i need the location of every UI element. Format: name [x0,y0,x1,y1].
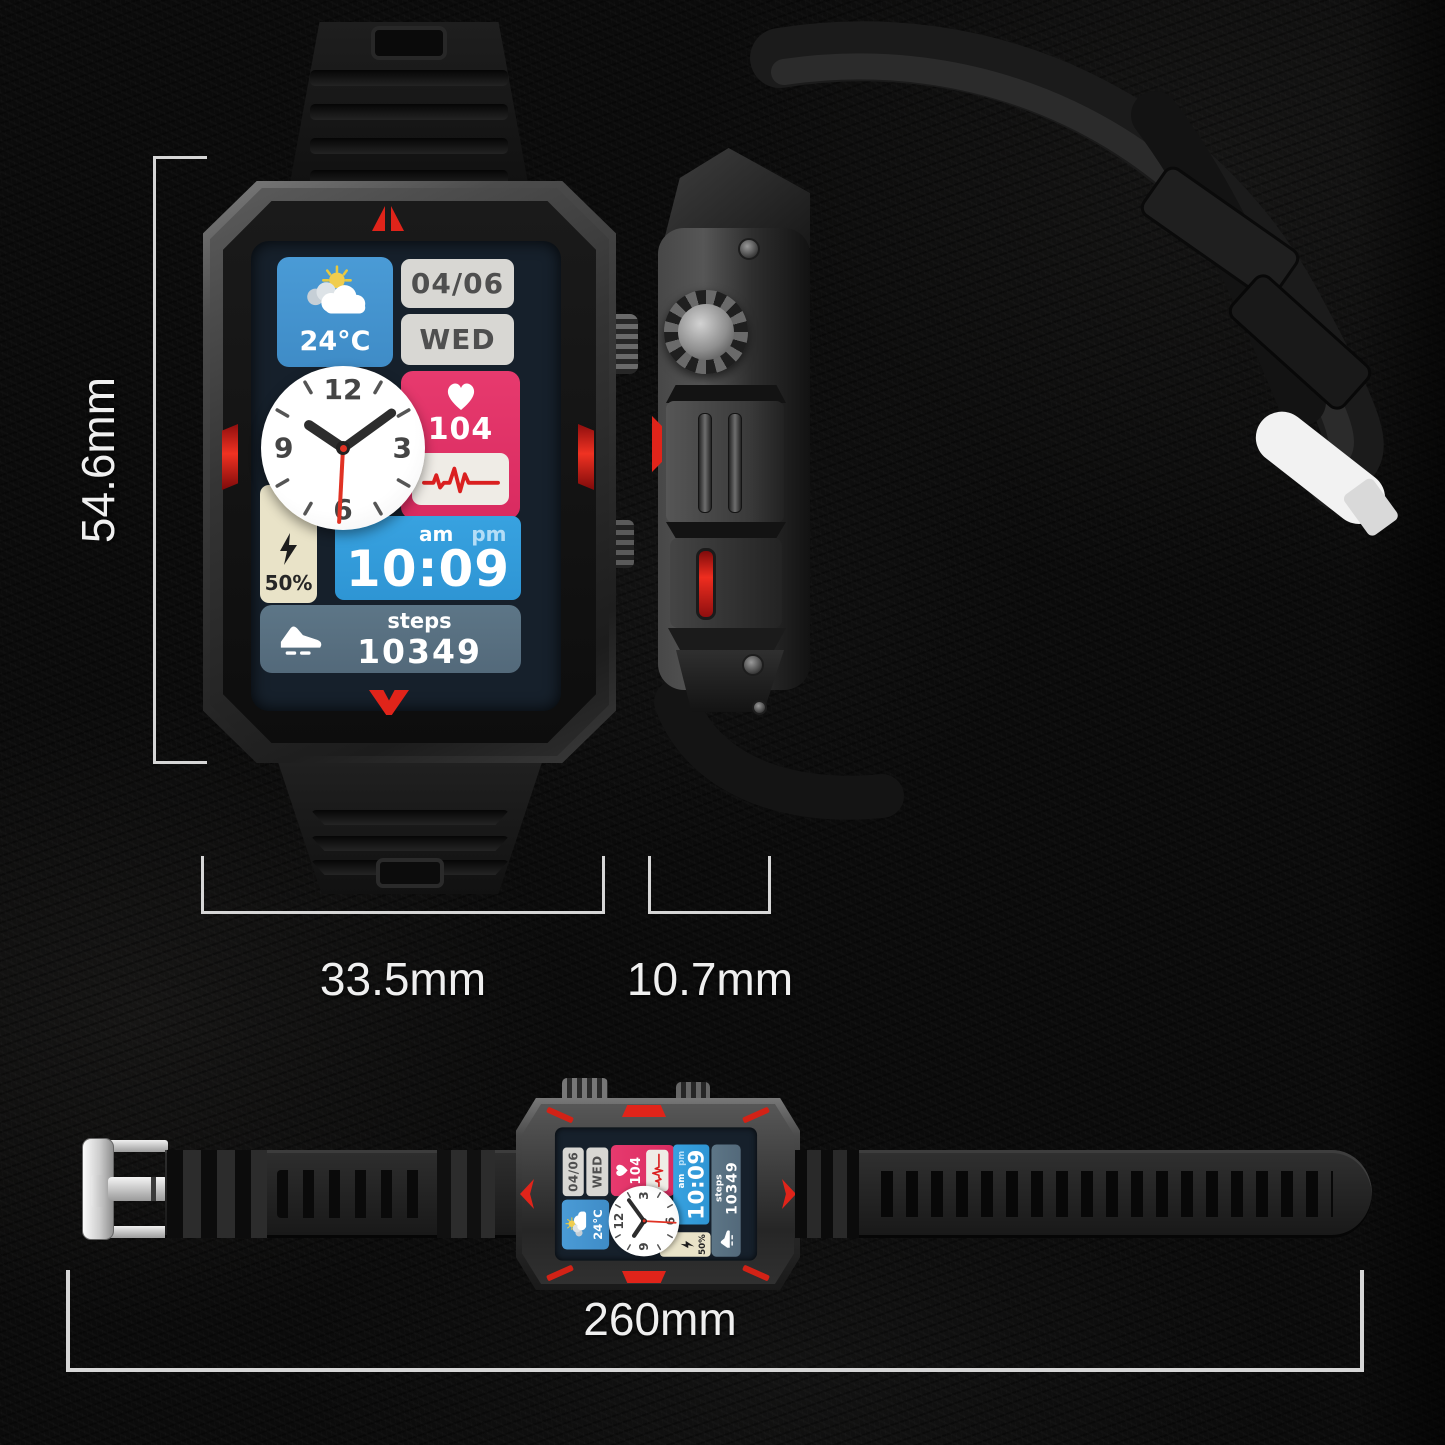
clock-numeral: 6 [261,493,425,526]
width-dimension-label: 33.5mm [203,952,603,1006]
temperature-label: 24°C [277,326,393,357]
lightning-bolt-icon [278,533,300,565]
bottom-strap-left [165,1150,517,1238]
clock-numeral: 9 [637,1242,651,1250]
red-side-button [696,548,716,620]
weather-tile: 24°C [562,1200,609,1250]
lightning-bolt-icon [681,1240,695,1249]
length-dimension-cap [1360,1270,1364,1372]
length-dimension-line [66,1368,1364,1372]
strap-buckle [82,1138,170,1240]
height-dimension-label: 54.6mm [70,330,126,590]
product-dimension-diagram: 24°C 04/06 WED 104 50% [0,0,1445,1445]
steps-tile: steps 10349 [711,1145,740,1257]
width-dimension-line [201,911,605,914]
bottom-strap-right [795,1150,1372,1238]
steps-value: 10349 [723,1147,740,1229]
screw [752,700,767,715]
steps-tile: steps 10349 [260,605,521,673]
red-bezel-accent [622,1105,666,1117]
clock-numeral: 12 [261,373,425,406]
red-bezel-accent [222,424,238,490]
analog-clock: 12 3 6 9 [609,1186,680,1257]
length-dimension-cap [66,1270,70,1372]
strap-holes [277,1170,427,1218]
thickness-dimension-cap [768,856,771,914]
watch-screen: 24°C 04/06 WED 104 50% [250,240,562,712]
strap-holes [881,1171,1333,1217]
width-dimension-cap [201,856,204,914]
strap-link [376,858,444,888]
ecg-line-icon [649,1152,665,1189]
ecg-line-icon [418,460,504,498]
weather-tile: 24°C [277,257,393,367]
heart-icon [615,1163,629,1178]
screw [738,238,760,260]
battery-percent-label: 50% [697,1232,707,1257]
watch-face-rotated: 24°C 04/06 WED 104 50% [555,1127,757,1260]
watch-screen-bottom-view: 24°C 04/06 WED 104 50% [553,1126,759,1262]
clock-numeral: 3 [637,1191,651,1199]
clock-numeral: 12 [612,1186,626,1257]
running-shoe-icon [278,617,324,659]
thickness-dimension-label: 10.7mm [600,952,820,1006]
front-strap-upper [288,22,530,194]
temperature-label: 24°C [592,1200,605,1250]
red-arrow-marking [372,206,406,231]
thickness-dimension-cap [648,856,651,914]
height-dimension-cap [153,761,207,764]
red-bezel-accent [622,1271,666,1283]
weekday-tile: WED [401,314,514,365]
date-tile: 04/06 [563,1148,584,1197]
steps-label: steps [713,1147,723,1229]
watch-face: 24°C 04/06 WED 104 50% [251,241,561,711]
steps-label: steps [324,609,515,633]
heart-icon [443,380,479,412]
clock-numeral: 9 [274,432,293,465]
running-shoe-icon [717,1229,735,1249]
height-dimension-line [153,156,156,764]
buckle-prong [108,1177,168,1201]
weekday-tile: WED [586,1148,608,1197]
width-dimension-cap [602,856,605,914]
side-panel [666,401,784,523]
analog-clock: 12 3 6 9 [261,366,425,530]
digital-time-value: 10:09 [335,540,521,598]
clock-numeral: 3 [393,432,412,465]
height-dimension-cap [153,156,207,159]
digital-time-value: 10:09 [684,1145,709,1225]
battery-percent-label: 50% [260,571,317,595]
sun-behind-cloud-icon [296,265,374,319]
date-tile: 04/06 [401,259,514,308]
thickness-dimension-line [648,911,771,914]
red-bezel-accent [578,424,594,490]
length-dimension-label: 260mm [450,1292,870,1346]
ecg-panel [412,453,509,505]
steps-value: 10349 [324,632,515,671]
screw [742,654,764,676]
strap-link [371,26,447,60]
sun-behind-cloud-icon [565,1208,588,1242]
